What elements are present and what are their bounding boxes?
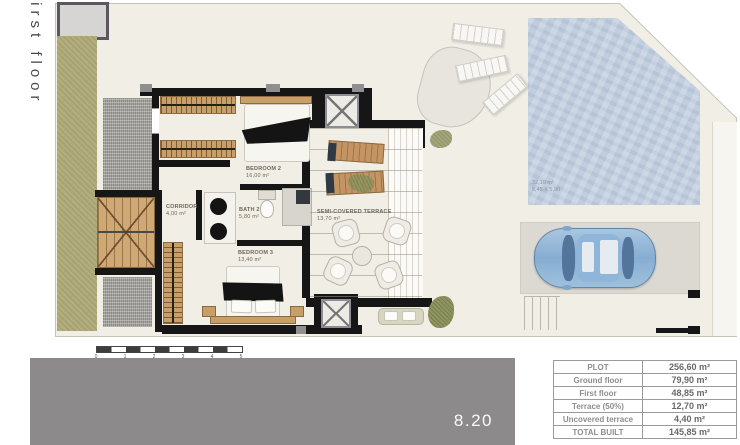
room-name: BEDROOM 2 xyxy=(246,166,281,173)
room-name: BEDROOM 3 xyxy=(238,250,273,257)
table-cell-label: PLOT xyxy=(554,361,643,374)
nightstand xyxy=(202,306,216,317)
bath-sink xyxy=(210,198,227,215)
stairs xyxy=(97,197,155,268)
nightstand xyxy=(290,306,304,317)
chair-cushion xyxy=(389,223,405,239)
shaft-skylight xyxy=(321,299,351,328)
table-row: Uncovered terrace 4,40 m² xyxy=(554,413,737,426)
door-marker xyxy=(296,326,306,334)
bench-pillow xyxy=(402,311,416,321)
wall-segment xyxy=(152,160,230,167)
areas-table: PLOT 256,60 m² Ground floor 79,90 m² Fir… xyxy=(553,360,737,439)
wall-segment xyxy=(237,240,307,246)
wall-segment xyxy=(688,326,700,334)
toilet-tank xyxy=(258,190,276,200)
wall-segment xyxy=(155,270,162,332)
table-cell-label: First floor xyxy=(554,387,643,400)
door-marker xyxy=(266,84,280,92)
plot-border-left xyxy=(55,3,56,337)
plot-border-bottom xyxy=(55,336,737,337)
wall-segment xyxy=(306,120,425,128)
pool-area: 32,10 m² xyxy=(532,180,560,187)
table-row: Ground floor 79,90 m² xyxy=(554,374,737,387)
table-cell-value: 79,90 m² xyxy=(643,374,737,387)
bed-headboard xyxy=(210,316,296,324)
wall-segment xyxy=(95,190,160,197)
bed-pillow xyxy=(231,300,252,314)
shower-head xyxy=(296,190,310,204)
table-cell-value: 256,60 m² xyxy=(643,361,737,374)
room-label-bath2: BATH 2 5,80 m² xyxy=(239,207,260,221)
room-name: BATH 2 xyxy=(239,207,260,214)
car xyxy=(534,228,656,288)
table-cell-label: Ground floor xyxy=(554,374,643,387)
car-sunroof xyxy=(582,242,594,272)
wall-segment xyxy=(155,190,162,275)
room-area: 4,00 m² xyxy=(166,211,198,218)
wall-segment xyxy=(152,88,159,195)
floor-title-vertical: First floor xyxy=(27,0,44,106)
room-label-terrace: SEMI-COVERED TERRACE 13,70 m² xyxy=(317,209,392,223)
table-cell-value: 4,40 m² xyxy=(643,413,737,426)
door-marker xyxy=(140,84,152,92)
wardrobe xyxy=(163,242,183,324)
lounger-headrest xyxy=(325,173,334,193)
toilet-bowl xyxy=(260,200,274,218)
bed-pillow xyxy=(255,300,276,314)
pool-dimensions: 5,45 X 5,90 xyxy=(532,187,560,194)
chair-cushion xyxy=(338,225,354,241)
shaft-skylight xyxy=(325,94,359,128)
table-cell-label: Uncovered terrace xyxy=(554,413,643,426)
wardrobe xyxy=(160,140,236,158)
wall-segment xyxy=(95,268,160,275)
bed-headboard xyxy=(240,96,312,104)
room-label-corridor: CORRIDOR 4,00 m² xyxy=(166,204,198,218)
wall-segment xyxy=(656,328,688,333)
room-area: 13,40 m² xyxy=(238,257,273,264)
car-mirror xyxy=(562,226,572,231)
table-row: PLOT 256,60 m² xyxy=(554,361,737,374)
scale-bar xyxy=(96,346,243,353)
table-row: TOTAL BUILT 145,85 m² xyxy=(554,426,737,439)
room-label-bedroom2: BEDROOM 2 16,00 m² xyxy=(246,166,281,180)
room-area: 13,70 m² xyxy=(317,216,392,223)
terrace-table xyxy=(352,246,372,266)
entry-planter-box xyxy=(57,2,109,40)
swimming-pool xyxy=(528,18,700,205)
car-windshield xyxy=(562,235,575,281)
car-rear-window xyxy=(622,237,634,279)
room-label-bedroom3: BEDROOM 3 13,40 m² xyxy=(238,250,273,264)
bath-sink xyxy=(210,223,227,240)
car-rear-glass-panel xyxy=(600,240,618,274)
table-row: First floor 48,85 m² xyxy=(554,387,737,400)
pool-label: 32,10 m² 5,45 X 5,90 xyxy=(532,180,560,194)
table-cell-value: 48,85 m² xyxy=(643,387,737,400)
room-area: 5,80 m² xyxy=(239,214,260,221)
bench-pillow xyxy=(384,311,398,321)
plan-number: 8.20 xyxy=(454,411,493,431)
table-cell-label: TOTAL BUILT xyxy=(554,426,643,439)
chair-cushion xyxy=(381,267,397,283)
table-cell-value: 12,70 m² xyxy=(643,400,737,413)
lounger-headrest xyxy=(327,143,336,162)
table-cell-label: Terrace (50%) xyxy=(554,400,643,413)
car-mirror xyxy=(562,285,572,290)
floor-plan-sheet: First floor 32,10 m² 5,45 X 5,90 xyxy=(0,0,740,445)
sidewalk-strip xyxy=(712,122,737,336)
exterior-stairs-sketch xyxy=(524,296,560,330)
gravel-patch-upper xyxy=(103,98,152,193)
wardrobe xyxy=(160,96,236,114)
gravel-patch-lower xyxy=(103,277,152,327)
table-row: Terrace (50%) 12,70 m² xyxy=(554,400,737,413)
plot-border-top xyxy=(55,3,620,4)
footer-bar: 8.20 xyxy=(30,358,515,445)
room-area: 16,00 m² xyxy=(246,173,281,180)
wall-segment xyxy=(688,290,700,298)
table-cell-value: 145,85 m² xyxy=(643,426,737,439)
window-gap xyxy=(152,108,159,134)
chair-cushion xyxy=(330,263,346,279)
room-name: SEMI-COVERED TERRACE xyxy=(317,209,392,216)
garden-strip xyxy=(57,36,97,331)
door-marker xyxy=(352,84,364,92)
room-name: CORRIDOR xyxy=(166,204,198,211)
